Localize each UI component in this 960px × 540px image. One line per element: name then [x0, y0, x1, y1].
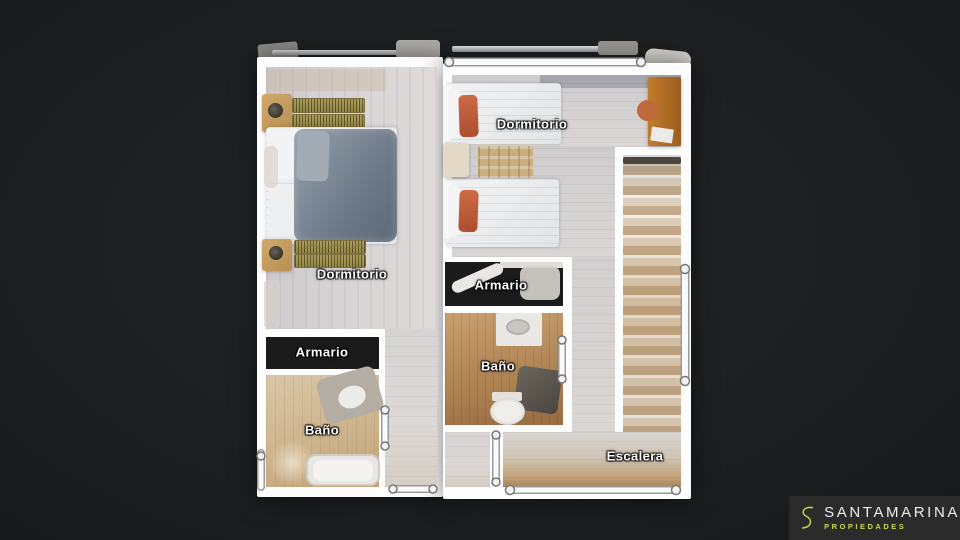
sink-basin-icon — [506, 319, 530, 335]
floorplan-canvas: Dormitorio Dormitorio Armario Baño Armar… — [0, 0, 960, 540]
wardrobe-blob-icon — [264, 280, 280, 328]
staircase[interactable] — [623, 155, 681, 432]
room-label-bano-left: Baño — [305, 424, 339, 437]
toilet — [490, 398, 525, 425]
room-label-dormitorio-right: Dormitorio — [497, 118, 567, 131]
lamp-icon — [269, 246, 283, 260]
stair-top-edge — [623, 157, 681, 164]
pillow-orange — [458, 190, 478, 233]
brand-logo: SANTAMARINA PROPIEDADES — [789, 496, 960, 540]
room-label-armario-center: Armario — [475, 279, 528, 292]
terrace-debris-icon — [598, 41, 638, 55]
room-label-escalera: Escalera — [607, 450, 664, 463]
bathtub-inner — [313, 460, 373, 481]
hallway-right[interactable] — [572, 257, 615, 432]
curtain-blob-icon — [264, 146, 278, 188]
rug — [478, 146, 533, 178]
brand-s-icon — [798, 502, 817, 534]
brand-tagline: PROPIEDADES — [824, 522, 960, 531]
headboard — [292, 98, 365, 113]
wall-shadow — [266, 69, 386, 91]
room-label-dormitorio-left: Dormitorio — [317, 268, 387, 281]
hallway-left[interactable] — [385, 329, 437, 487]
hallway-bottom[interactable] — [445, 432, 490, 487]
pillow — [296, 130, 330, 181]
headboard — [292, 114, 365, 128]
room-label-armario-left: Armario — [296, 346, 349, 359]
chair — [637, 100, 658, 121]
desk-paper-icon — [650, 127, 674, 144]
room-label-bano-center: Baño — [481, 360, 515, 373]
foot-bench — [294, 240, 366, 254]
brand-name: SANTAMARINA — [824, 505, 960, 521]
lamp-icon — [268, 103, 283, 118]
pillow-orange — [458, 95, 478, 138]
nightstand — [443, 143, 469, 177]
